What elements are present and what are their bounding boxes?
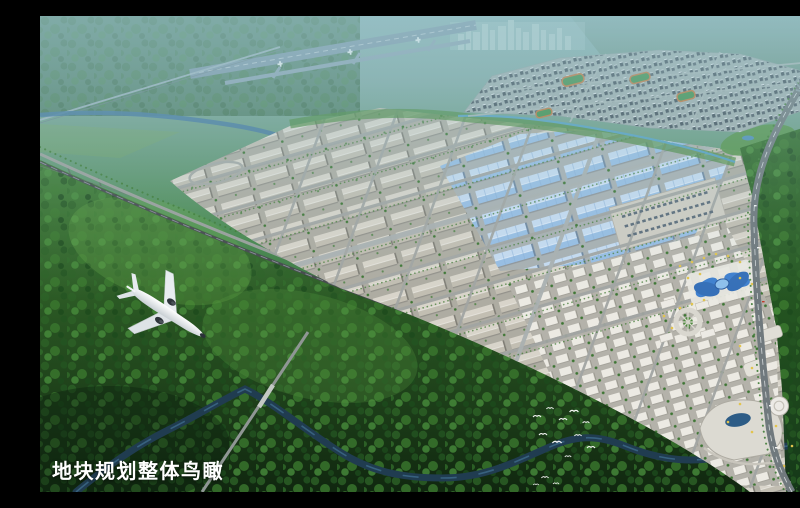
rendering-canvas	[40, 16, 800, 492]
caption-overlay: 地块规划整体鸟瞰	[52, 455, 224, 484]
caption-text: 地块规划整体鸟瞰	[52, 459, 224, 483]
aerial-rendering: 地块规划整体鸟瞰	[40, 16, 800, 492]
atmospheric-haze	[40, 16, 800, 492]
